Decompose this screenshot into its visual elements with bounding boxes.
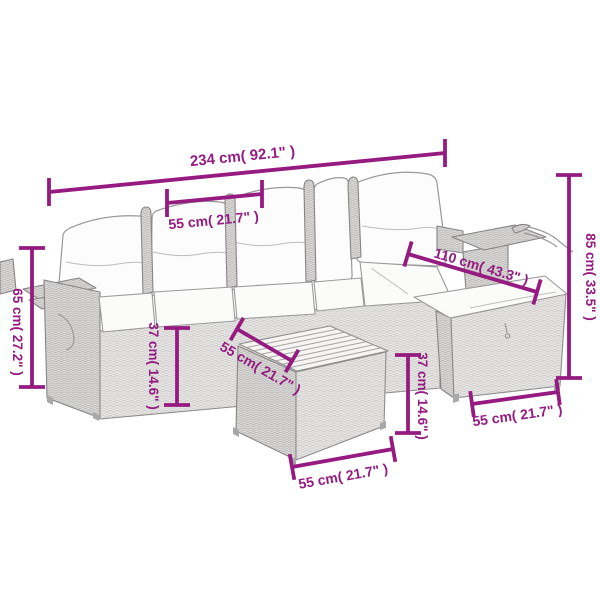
back-cushion xyxy=(231,187,312,290)
seat-cushion xyxy=(314,278,364,311)
dim-seat-height-label: 37 cm( 14.6" ) xyxy=(146,322,161,409)
corner-back-cushion xyxy=(356,172,447,266)
back-post xyxy=(141,207,153,294)
dim-footstool-height-label: 37 cm( 14.6" ) xyxy=(415,352,430,439)
back-post xyxy=(304,180,316,282)
sofa-dimension-diagram: 234 cm( 92.1" ) 55 cm( 21.7" ) 65 cm( 27… xyxy=(0,0,600,600)
seat-cushion xyxy=(234,282,315,319)
left-side-block xyxy=(44,280,100,418)
back-post xyxy=(225,194,237,288)
dim-armrest-height-label: 65 cm( 27.2" ) xyxy=(10,288,25,375)
dim-total-height-label: 85 cm( 33.5" ) xyxy=(583,233,598,320)
back-cushion xyxy=(313,178,352,282)
seat-cushion xyxy=(154,287,235,327)
